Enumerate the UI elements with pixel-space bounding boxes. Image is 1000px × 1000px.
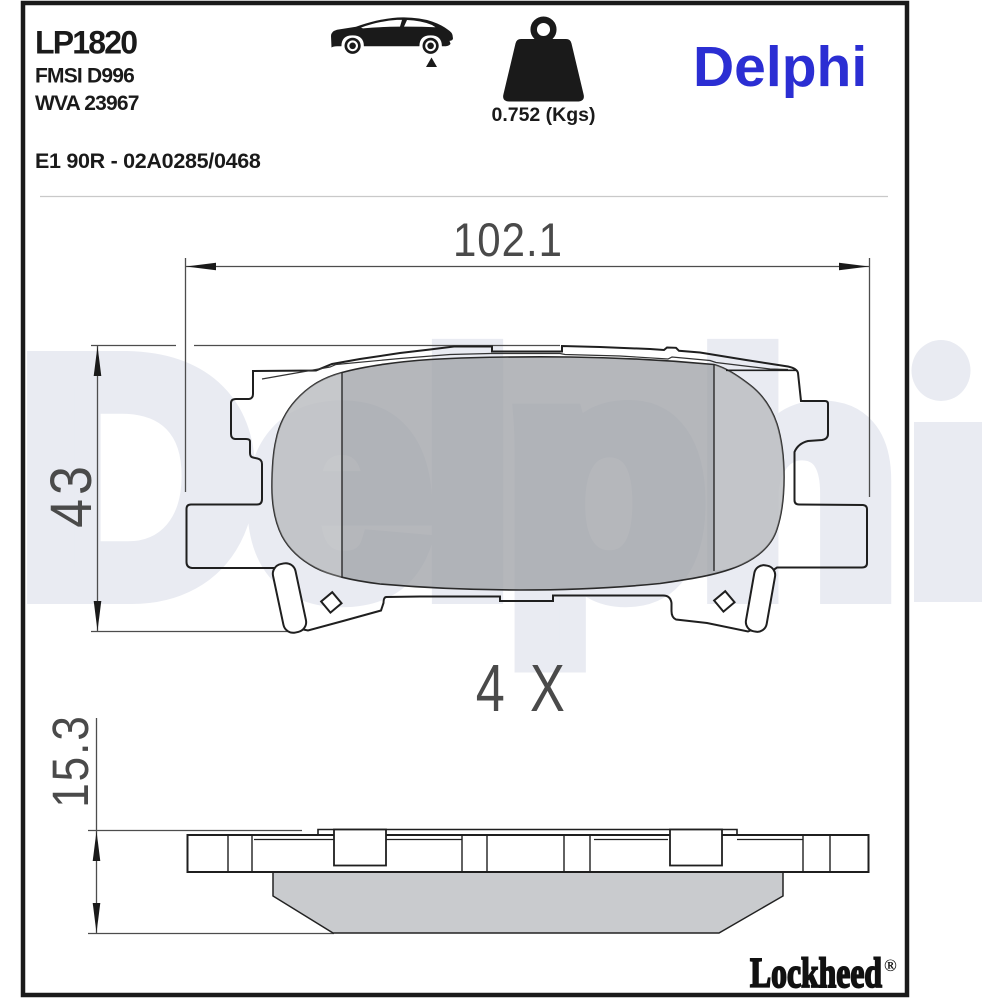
svg-text:LP1820: LP1820 <box>35 25 137 61</box>
svg-text:®: ® <box>884 956 897 975</box>
svg-text:43: 43 <box>38 462 104 528</box>
svg-text:Delphi: Delphi <box>693 35 867 99</box>
svg-text:Lockheed: Lockheed <box>750 951 882 997</box>
svg-text:4 X: 4 X <box>476 651 571 726</box>
svg-text:FMSI D996: FMSI D996 <box>35 65 134 88</box>
svg-text:0.752 (Kgs): 0.752 (Kgs) <box>491 104 595 126</box>
svg-text:E1 90R - 02A0285/0468: E1 90R - 02A0285/0468 <box>35 149 261 173</box>
svg-text:15.3: 15.3 <box>43 714 100 808</box>
svg-text:102.1: 102.1 <box>453 215 563 267</box>
svg-text:WVA 23967: WVA 23967 <box>35 92 139 115</box>
